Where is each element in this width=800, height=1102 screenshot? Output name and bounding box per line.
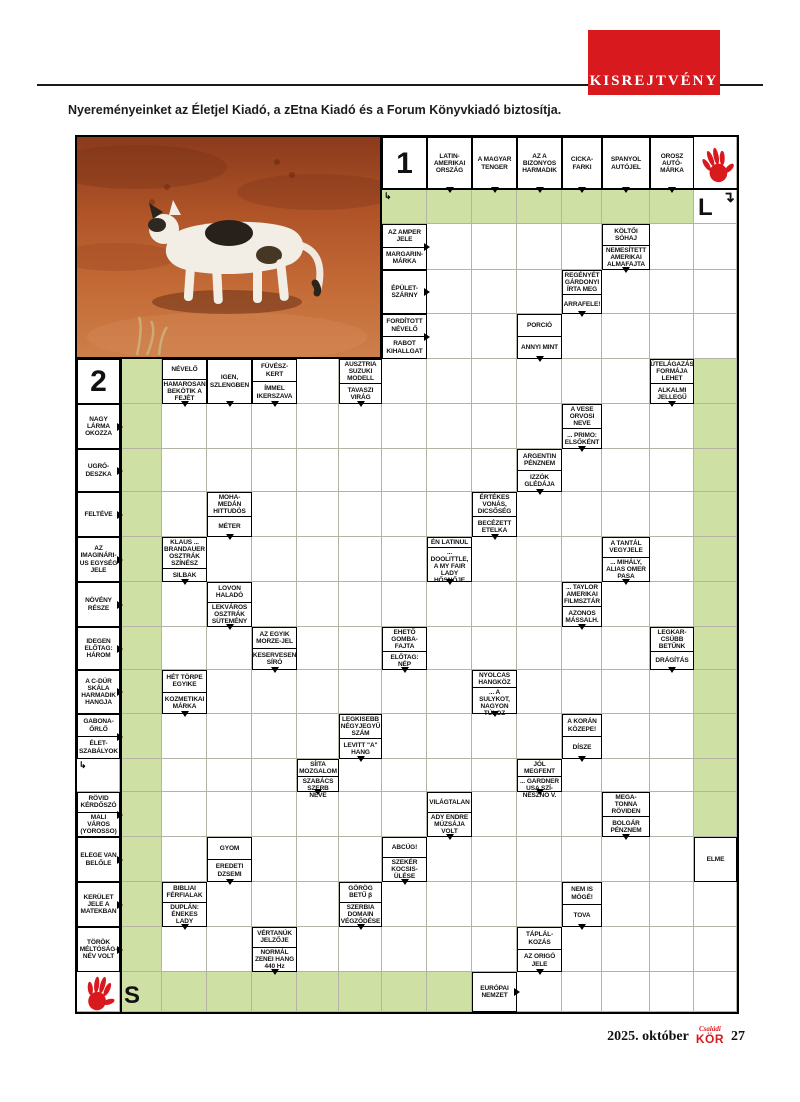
clue-box: IDEGEN ELŐTAG: HÁROM <box>77 627 120 670</box>
clue-box: ELME <box>694 837 737 882</box>
grid-cell[interactable] <box>694 404 737 449</box>
grid-cell[interactable] <box>602 670 650 714</box>
grid-cell[interactable] <box>694 582 737 627</box>
grid-cell[interactable] <box>602 927 650 972</box>
clue-text: OROSZ AUTÓ-MÁRKA <box>651 138 693 189</box>
puzzle-number: 2 <box>77 359 120 404</box>
grid-cell[interactable] <box>694 224 737 270</box>
grid-cell[interactable] <box>207 670 252 714</box>
grid-cell[interactable] <box>472 314 517 359</box>
grid-cell[interactable] <box>297 449 339 492</box>
turn-arrow-icon: ↴ <box>722 188 735 206</box>
clue-box: CICKA-FARKI <box>562 137 602 190</box>
clue-arrow-icon <box>536 356 544 366</box>
clue-text: PORCIÓ <box>518 315 561 336</box>
grid-cell[interactable] <box>427 972 472 1012</box>
clue-text: AZ ORIGÓ JELE <box>518 949 561 971</box>
grid-cell[interactable] <box>650 492 694 537</box>
grid-cell[interactable] <box>339 627 382 670</box>
clue-text: ÉRTÉKES VONÁS, DICSŐSÉG <box>473 493 516 516</box>
clue-text: NEMESÍTETT AMERIKAI ALMAFAJTA <box>603 245 649 269</box>
clue-text: UGRÓ-DESZKA <box>78 450 119 491</box>
grid-cell[interactable] <box>517 714 562 759</box>
grid-cell[interactable] <box>339 837 382 882</box>
clue-text: DÍSZE <box>563 736 601 758</box>
grid-cell[interactable] <box>382 359 427 404</box>
grid-cell[interactable] <box>339 972 382 1012</box>
grid-cell[interactable] <box>427 449 472 492</box>
grid-cell[interactable] <box>382 492 427 537</box>
clue-text: NÉVELŐ <box>163 360 206 379</box>
clue-arrow-icon <box>491 711 499 721</box>
grid-cell[interactable] <box>694 670 737 714</box>
grid-cell[interactable] <box>297 670 339 714</box>
clue-text: LEGKAR- CSÚBB BETŰNK <box>651 628 693 651</box>
grid-cell[interactable] <box>562 537 602 582</box>
clue-box: EURÓPAI NEMZET <box>472 972 517 1012</box>
grid-cell[interactable] <box>517 270 562 314</box>
grid-cell[interactable] <box>427 627 472 670</box>
cat-in-desert-photo <box>77 137 382 359</box>
grid-cell[interactable] <box>650 714 694 759</box>
clue-box: NYOLCAS HANGKÖZ... A SULYKOT, NAGYON TÚL… <box>472 670 517 714</box>
grid-cell[interactable] <box>694 972 737 1012</box>
clue-arrow-icon <box>357 756 365 766</box>
clue-box: RÖVID KÉRDŐSZÓMALI VÁROS (YOROSSO) <box>77 792 120 837</box>
clue-text: TAVASZI VIRÁG <box>340 383 381 403</box>
clue-box: AZ EGYIK MORZE-JELKESERVESEN SÍRÓ <box>252 627 297 670</box>
clue-arrow-icon <box>117 856 127 864</box>
clue-arrow-icon <box>117 511 127 519</box>
grid-cell[interactable] <box>694 537 737 582</box>
grid-cell[interactable] <box>252 792 297 837</box>
clue-text: ELEGE VAN BELŐLE <box>78 838 119 881</box>
handprint-icon <box>77 972 120 1012</box>
grid-cell[interactable] <box>339 492 382 537</box>
grid-cell[interactable] <box>694 314 737 359</box>
grid-cell[interactable] <box>207 927 252 972</box>
grid-cell[interactable] <box>650 270 694 314</box>
clue-box: LATIN-AMERIKAI ORSZÁG <box>427 137 472 190</box>
clue-box: A MAGYAR TENGER <box>472 137 517 190</box>
grid-cell[interactable] <box>297 359 339 404</box>
clue-box: SPANYOL AUTÓJEL <box>602 137 650 190</box>
grid-cell[interactable] <box>602 714 650 759</box>
grid-cell[interactable] <box>427 670 472 714</box>
page-number: 27 <box>731 1029 745 1045</box>
grid-cell[interactable] <box>694 449 737 492</box>
grid-cell[interactable] <box>297 627 339 670</box>
grid-cell[interactable] <box>562 359 602 404</box>
clue-text: CICKA-FARKI <box>563 138 601 189</box>
grid-cell[interactable] <box>694 627 737 670</box>
grid-cell[interactable] <box>472 224 517 270</box>
grid-cell[interactable] <box>517 582 562 627</box>
clue-text: AZ IMAGINÁRI- US EGYSÉG JELE <box>78 538 119 581</box>
clue-box: BIBLIAI FÉRFIALAKDUPLÁN: ÉNEKES LADY <box>162 882 207 927</box>
grid-cell[interactable] <box>382 927 427 972</box>
clue-arrow-icon <box>578 311 586 321</box>
clue-box: UGRÓ-DESZKA <box>77 449 120 492</box>
clue-arrow-icon <box>424 288 434 296</box>
grid-cell[interactable] <box>517 670 562 714</box>
grid-cell[interactable] <box>252 837 297 882</box>
clue-text: KOZMETIKAI MÁRKA <box>163 692 206 714</box>
clue-box: LOVON HALADÓLEKVÁROS OSZTRÁK SÜTEMÉNY <box>207 582 252 627</box>
clue-text: AZONOS MÁSSALH. <box>563 606 601 626</box>
clue-text: REGÉNYÉT GÁRDONYI ÍRTA MEG <box>563 271 601 294</box>
grid-cell[interactable] <box>339 582 382 627</box>
clue-box: FORDÍTOTT NÉVELŐRABOT KIHALLGAT <box>382 314 427 359</box>
grid-cell[interactable] <box>297 537 339 582</box>
grid-cell[interactable] <box>297 972 339 1012</box>
grid-cell[interactable] <box>650 224 694 270</box>
grid-cell[interactable] <box>562 670 602 714</box>
grid-cell[interactable] <box>382 759 427 792</box>
grid-cell[interactable] <box>297 582 339 627</box>
grid-cell[interactable] <box>694 492 737 537</box>
clue-arrow-icon <box>117 946 127 954</box>
clue-text: A C-DÚR SKÁLA HARMADIK HANGJA <box>78 671 119 713</box>
grid-cell[interactable] <box>427 492 472 537</box>
grid-cell[interactable] <box>427 404 472 449</box>
grid-cell[interactable] <box>694 359 737 404</box>
clue-text: ÚTELÁGAZÁS FORMÁJA LEHET <box>651 360 693 383</box>
grid-cell[interactable] <box>207 449 252 492</box>
puzzle-number: 1 <box>382 137 427 190</box>
clue-box: ... TAYLOR AMERIKAI FILMSZTÁRAZONOS MÁSS… <box>562 582 602 627</box>
clue-text: VILÁGTALAN <box>428 793 471 812</box>
grid-cell[interactable] <box>472 627 517 670</box>
clue-text: ... TAYLOR AMERIKAI FILMSZTÁR <box>563 583 601 606</box>
clue-box: SÍITA MOZGALOMSZABÁCS SZERB NEVE <box>297 759 339 792</box>
grid-cell[interactable] <box>472 359 517 404</box>
clue-text: AZ AMPER JELE <box>383 225 426 247</box>
clue-text: GÖRÖG BETŰ β <box>340 883 381 902</box>
grid-cell[interactable] <box>162 792 207 837</box>
grid-cell[interactable] <box>207 792 252 837</box>
grid-cell[interactable] <box>339 537 382 582</box>
grid-cell[interactable] <box>297 404 339 449</box>
clue-text: BOLGÁR PÉNZNEM <box>603 816 649 836</box>
clue-text: ... PRIMO: ELSŐKÉNT <box>563 428 601 448</box>
clue-arrow-icon <box>226 401 234 411</box>
clue-text: NEM IS MÖGÉ! <box>563 883 601 904</box>
grid-cell[interactable] <box>602 314 650 359</box>
grid-cell[interactable] <box>427 714 472 759</box>
grid-cell[interactable] <box>562 492 602 537</box>
clue-text: NÖVÉNY RÉSZE <box>78 583 119 626</box>
clue-arrow-icon <box>401 879 409 889</box>
clue-text: LEKVÁROS OSZTRÁK SÜTEMÉNY <box>208 602 251 626</box>
grid-cell[interactable] <box>602 404 650 449</box>
grid-cell[interactable] <box>207 714 252 759</box>
clue-box: A C-DÚR SKÁLA HARMADIK HANGJA <box>77 670 120 714</box>
grid-cell[interactable] <box>602 972 650 1012</box>
page-footer: 2025. október Családi KÖR 27 <box>607 1026 745 1045</box>
grid-cell[interactable] <box>472 792 517 837</box>
grid-cell[interactable] <box>472 882 517 927</box>
grid-cell[interactable] <box>602 449 650 492</box>
grid-cell[interactable] <box>472 404 517 449</box>
clue-arrow-icon <box>117 601 127 609</box>
clue-box: HÉT TÖRPE EGYIKEKOZMETIKAI MÁRKA <box>162 670 207 714</box>
grid-cell[interactable] <box>472 927 517 972</box>
clue-box: TÖRÖK MÉLTÓSÁG- NÉV VOLT <box>77 927 120 972</box>
grid-cell[interactable] <box>562 837 602 882</box>
grid-cell[interactable] <box>297 927 339 972</box>
grid-cell[interactable] <box>562 972 602 1012</box>
clue-box: NÖVÉNY RÉSZE <box>77 582 120 627</box>
clue-arrow-icon <box>622 579 630 589</box>
grid-cell[interactable] <box>602 627 650 670</box>
grid-cell[interactable] <box>472 449 517 492</box>
grid-cell[interactable] <box>562 792 602 837</box>
grid-cell[interactable] <box>472 759 517 792</box>
clue-arrow-icon <box>226 624 234 634</box>
grid-cell[interactable] <box>427 759 472 792</box>
prefilled-letter: S <box>120 972 162 1012</box>
grid-cell[interactable] <box>162 627 207 670</box>
clue-text: ÉN LATINUL <box>428 538 471 547</box>
clue-text: LEVITT "A" HANG <box>340 738 381 758</box>
start-arrow-icon: ↳ <box>384 191 392 202</box>
prize-note: Nyereményeinket az Életjel Kiadó, a zEtn… <box>68 103 668 117</box>
grid-cell[interactable] <box>427 882 472 927</box>
grid-cell[interactable] <box>252 449 297 492</box>
clue-text: ADY ENDRE MÚZSÁJA VOLT <box>428 812 471 836</box>
clue-arrow-icon <box>226 879 234 889</box>
issue-date: 2025. október <box>607 1029 689 1045</box>
grid-cell[interactable] <box>297 882 339 927</box>
grid-cell[interactable] <box>602 759 650 792</box>
clue-box: ÉN LATINUL... DOOLITTLE, A MY FAIR LADY … <box>427 537 472 582</box>
grid-cell[interactable] <box>694 714 737 759</box>
grid-cell[interactable] <box>252 492 297 537</box>
grid-cell[interactable] <box>252 537 297 582</box>
clue-arrow-icon <box>668 401 676 411</box>
clue-box: IGEN, SZLENGBEN <box>207 359 252 404</box>
clue-text: A TANTÁL VEGYJELE <box>603 538 649 557</box>
clue-box: VÉRTANÚK JELZŐJENORMÁL ZENEI HANG 440 Hz <box>252 927 297 972</box>
clue-box: A VESE ORVOSI NEVE... PRIMO: ELSŐKÉNT <box>562 404 602 449</box>
grid-cell[interactable] <box>694 927 737 972</box>
grid-cell[interactable] <box>562 224 602 270</box>
grid-cell[interactable] <box>650 314 694 359</box>
clue-text: KESERVESEN SÍRÓ <box>253 648 296 669</box>
clue-arrow-icon <box>181 401 189 411</box>
grid-cell[interactable] <box>517 404 562 449</box>
clue-arrow-icon <box>491 534 499 544</box>
grid-cell[interactable] <box>339 670 382 714</box>
grid-cell[interactable] <box>694 882 737 927</box>
clue-text: EREDETI DZSEMI <box>208 859 251 881</box>
clue-text: MÉTER <box>208 516 251 536</box>
grid-cell[interactable] <box>650 537 694 582</box>
clue-text: TOVA <box>563 904 601 926</box>
clue-box: A TANTÁL VEGYJELE... MIHÁLY, ALIAS OMER … <box>602 537 650 582</box>
grid-cell[interactable] <box>472 270 517 314</box>
clue-arrow-icon <box>357 401 365 411</box>
clue-text: FORDÍTOTT NÉVELŐ <box>383 315 426 336</box>
grid-cell[interactable] <box>252 759 297 792</box>
clue-arrow-icon <box>536 489 544 499</box>
grid-cell[interactable] <box>427 359 472 404</box>
clue-box: GYOMEREDETI DZSEMI <box>207 837 252 882</box>
clue-arrow-icon <box>357 924 365 934</box>
clue-box: FELTÉVE <box>77 492 120 537</box>
grid-cell[interactable] <box>694 792 737 837</box>
clue-text: MEGA- TONNA RÖVIDEN <box>603 793 649 816</box>
grid-cell[interactable] <box>650 927 694 972</box>
grid-cell[interactable] <box>382 972 427 1012</box>
clue-text: IGEN, SZLENGBEN <box>208 360 251 403</box>
grid-cell[interactable] <box>297 837 339 882</box>
clue-text: KLAUS ... BRANDAUER OSZTRÁK SZÍNÉSZ <box>163 538 206 568</box>
clue-arrow-icon <box>578 624 586 634</box>
clue-text: NAGY LÁRMA OKOZZA <box>78 405 119 448</box>
clue-text: FÜVÉSZ-KERT <box>253 360 296 381</box>
clue-box: ELEGE VAN BELŐLE <box>77 837 120 882</box>
grid-cell[interactable] <box>207 759 252 792</box>
grid-cell[interactable] <box>427 927 472 972</box>
grid-cell[interactable] <box>650 792 694 837</box>
grid-cell[interactable] <box>207 972 252 1012</box>
grid-cell[interactable] <box>120 759 162 792</box>
clue-box: VILÁGTALANADY ENDRE MÚZSÁJA VOLT <box>427 792 472 837</box>
grid-cell[interactable] <box>120 359 162 404</box>
grid-cell[interactable] <box>517 882 562 927</box>
clue-text: LEGKISEBB NÉGYJEGYŰ SZÁM <box>340 715 381 738</box>
clue-box: MEGA- TONNA RÖVIDENBOLGÁR PÉNZNEM <box>602 792 650 837</box>
magazine-page: KISREJTVÉNY Nyereményeinket az Életjel K… <box>0 0 800 1102</box>
grid-cell[interactable] <box>472 582 517 627</box>
grid-cell[interactable] <box>162 972 207 1012</box>
grid-cell[interactable] <box>339 792 382 837</box>
clue-arrow-icon <box>117 423 127 431</box>
clue-arrow-icon <box>117 733 127 741</box>
clue-arrow-icon <box>668 667 676 677</box>
clue-text: KÖLTŐI SÓHAJ <box>603 225 649 245</box>
clue-box: A KORÁN KÖZEPE!DÍSZE <box>562 714 602 759</box>
grid-cell[interactable] <box>517 224 562 270</box>
grid-cell[interactable] <box>162 759 207 792</box>
grid-cell[interactable] <box>252 714 297 759</box>
grid-cell[interactable] <box>339 449 382 492</box>
grid-cell[interactable] <box>162 837 207 882</box>
clue-box: ÚTELÁGAZÁS FORMÁJA LEHETALKALMI JELLEGŰ <box>650 359 694 404</box>
grid-cell[interactable] <box>517 537 562 582</box>
clue-box: TÁPLÁL- KOZÁSAZ ORIGÓ JELE <box>517 927 562 972</box>
grid-cell[interactable] <box>517 627 562 670</box>
grid-cell[interactable] <box>382 537 427 582</box>
clue-text: ALKALMI JELLEGŰ <box>651 383 693 403</box>
clue-box: AZ IMAGINÁRI- US EGYSÉG JELE <box>77 537 120 582</box>
heavy-rule <box>382 188 737 190</box>
clue-text: FELTÉVE <box>78 493 119 536</box>
clue-text: EURÓPAI NEMZET <box>473 973 516 1011</box>
grid-cell[interactable] <box>162 492 207 537</box>
clue-box: LEGKISEBB NÉGYJEGYŰ SZÁMLEVITT "A" HANG <box>339 714 382 759</box>
clue-text: GABONA-ŐRLŐ <box>78 715 119 736</box>
grid-cell[interactable] <box>650 972 694 1012</box>
handprint-icon <box>694 137 737 190</box>
grid-cell[interactable] <box>602 492 650 537</box>
clue-text: SÍITA MOZGALOM <box>298 760 338 776</box>
clue-text: LATIN-AMERIKAI ORSZÁG <box>428 138 471 189</box>
clue-box: GÖRÖG BETŰ βSZERBIA DOMAIN VÉGZŐDÉSE <box>339 882 382 927</box>
clue-text: A KORÁN KÖZEPE! <box>563 715 601 736</box>
clue-box: ABCÚG!SZEKÉR KOCSIS-ÜLÉSE <box>382 837 427 882</box>
grid-cell[interactable] <box>650 882 694 927</box>
grid-cell[interactable] <box>382 404 427 449</box>
clue-text: ABCÚG! <box>383 838 426 857</box>
grid-cell[interactable] <box>252 882 297 927</box>
grid-cell[interactable] <box>382 582 427 627</box>
clue-text: SZEKÉR KOCSIS-ÜLÉSE <box>383 857 426 881</box>
clue-box: LEGKAR- CSÚBB BETŰNKDRÁGÍTÁS <box>650 627 694 670</box>
magazine-logo: Családi KÖR <box>696 1026 724 1045</box>
start-arrow-icon: ↳ <box>79 760 87 771</box>
grid-cell[interactable] <box>517 837 562 882</box>
clue-box: PORCIÓANNYI MINT <box>517 314 562 359</box>
clue-box: KÖLTŐI SÓHAJNEMESÍTETT AMERIKAI ALMAFAJT… <box>602 224 650 270</box>
clue-arrow-icon <box>117 688 127 696</box>
clue-text: A VESE ORVOSI NEVE <box>563 405 601 428</box>
clue-arrow-icon <box>514 988 524 996</box>
grid-cell[interactable] <box>382 792 427 837</box>
grid-cell[interactable] <box>382 714 427 759</box>
heavy-rule <box>120 359 122 1012</box>
clue-text: MALI VÁROS (YOROSSO) <box>78 812 119 836</box>
grid-cell[interactable] <box>162 449 207 492</box>
clue-arrow-icon <box>446 579 454 589</box>
clue-box: ARGENTIN PÉNZNEMIZZÓK GLÉDÁJA <box>517 449 562 492</box>
clue-text: ÉLET-SZABÁLYOK <box>78 736 119 758</box>
clue-arrow-icon <box>117 901 127 909</box>
clue-arrow-icon <box>314 789 322 799</box>
clue-text: NYOLCAS HANGKÖZ <box>473 671 516 687</box>
clue-arrow-icon <box>271 401 279 411</box>
grid-cell[interactable] <box>602 359 650 404</box>
grid-cell[interactable] <box>694 270 737 314</box>
clue-arrow-icon <box>424 243 434 251</box>
clue-box: KLAUS ... BRANDAUER OSZTRÁK SZÍNÉSZSILBA… <box>162 537 207 582</box>
grid-cell[interactable] <box>694 759 737 792</box>
clue-box: AUSZTRIA SUZUKI MODELLTAVASZI VIRÁG <box>339 359 382 404</box>
grid-cell[interactable] <box>252 582 297 627</box>
clue-box: EHETŐ GOMBA-FAJTAELŐTAG: NÉP <box>382 627 427 670</box>
grid-cell[interactable] <box>472 837 517 882</box>
banner-title: KISREJTVÉNY <box>590 73 719 90</box>
clue-box: AZ AMPER JELEMARGARIN-MÁRKA <box>382 224 427 270</box>
grid-cell[interactable] <box>650 837 694 882</box>
clue-arrow-icon <box>271 969 279 979</box>
grid-cell[interactable] <box>382 449 427 492</box>
clue-box: JÓL MEGFENT... GARDNER USA SZÍ- NÉSZNŐ V… <box>517 759 562 792</box>
grid-cell[interactable] <box>297 714 339 759</box>
clue-text: ÉPÜLET-SZÁRNY <box>383 271 426 313</box>
grid-cell[interactable] <box>602 882 650 927</box>
clue-text: JÓL MEGFENT <box>518 760 561 776</box>
clue-arrow-icon <box>536 969 544 979</box>
grid-cell[interactable] <box>650 449 694 492</box>
grid-cell[interactable] <box>650 582 694 627</box>
grid-cell[interactable] <box>650 759 694 792</box>
clue-text: BECÉZETT ETELKA <box>473 516 516 536</box>
clue-arrow-icon <box>446 834 454 844</box>
grid-cell[interactable] <box>297 492 339 537</box>
